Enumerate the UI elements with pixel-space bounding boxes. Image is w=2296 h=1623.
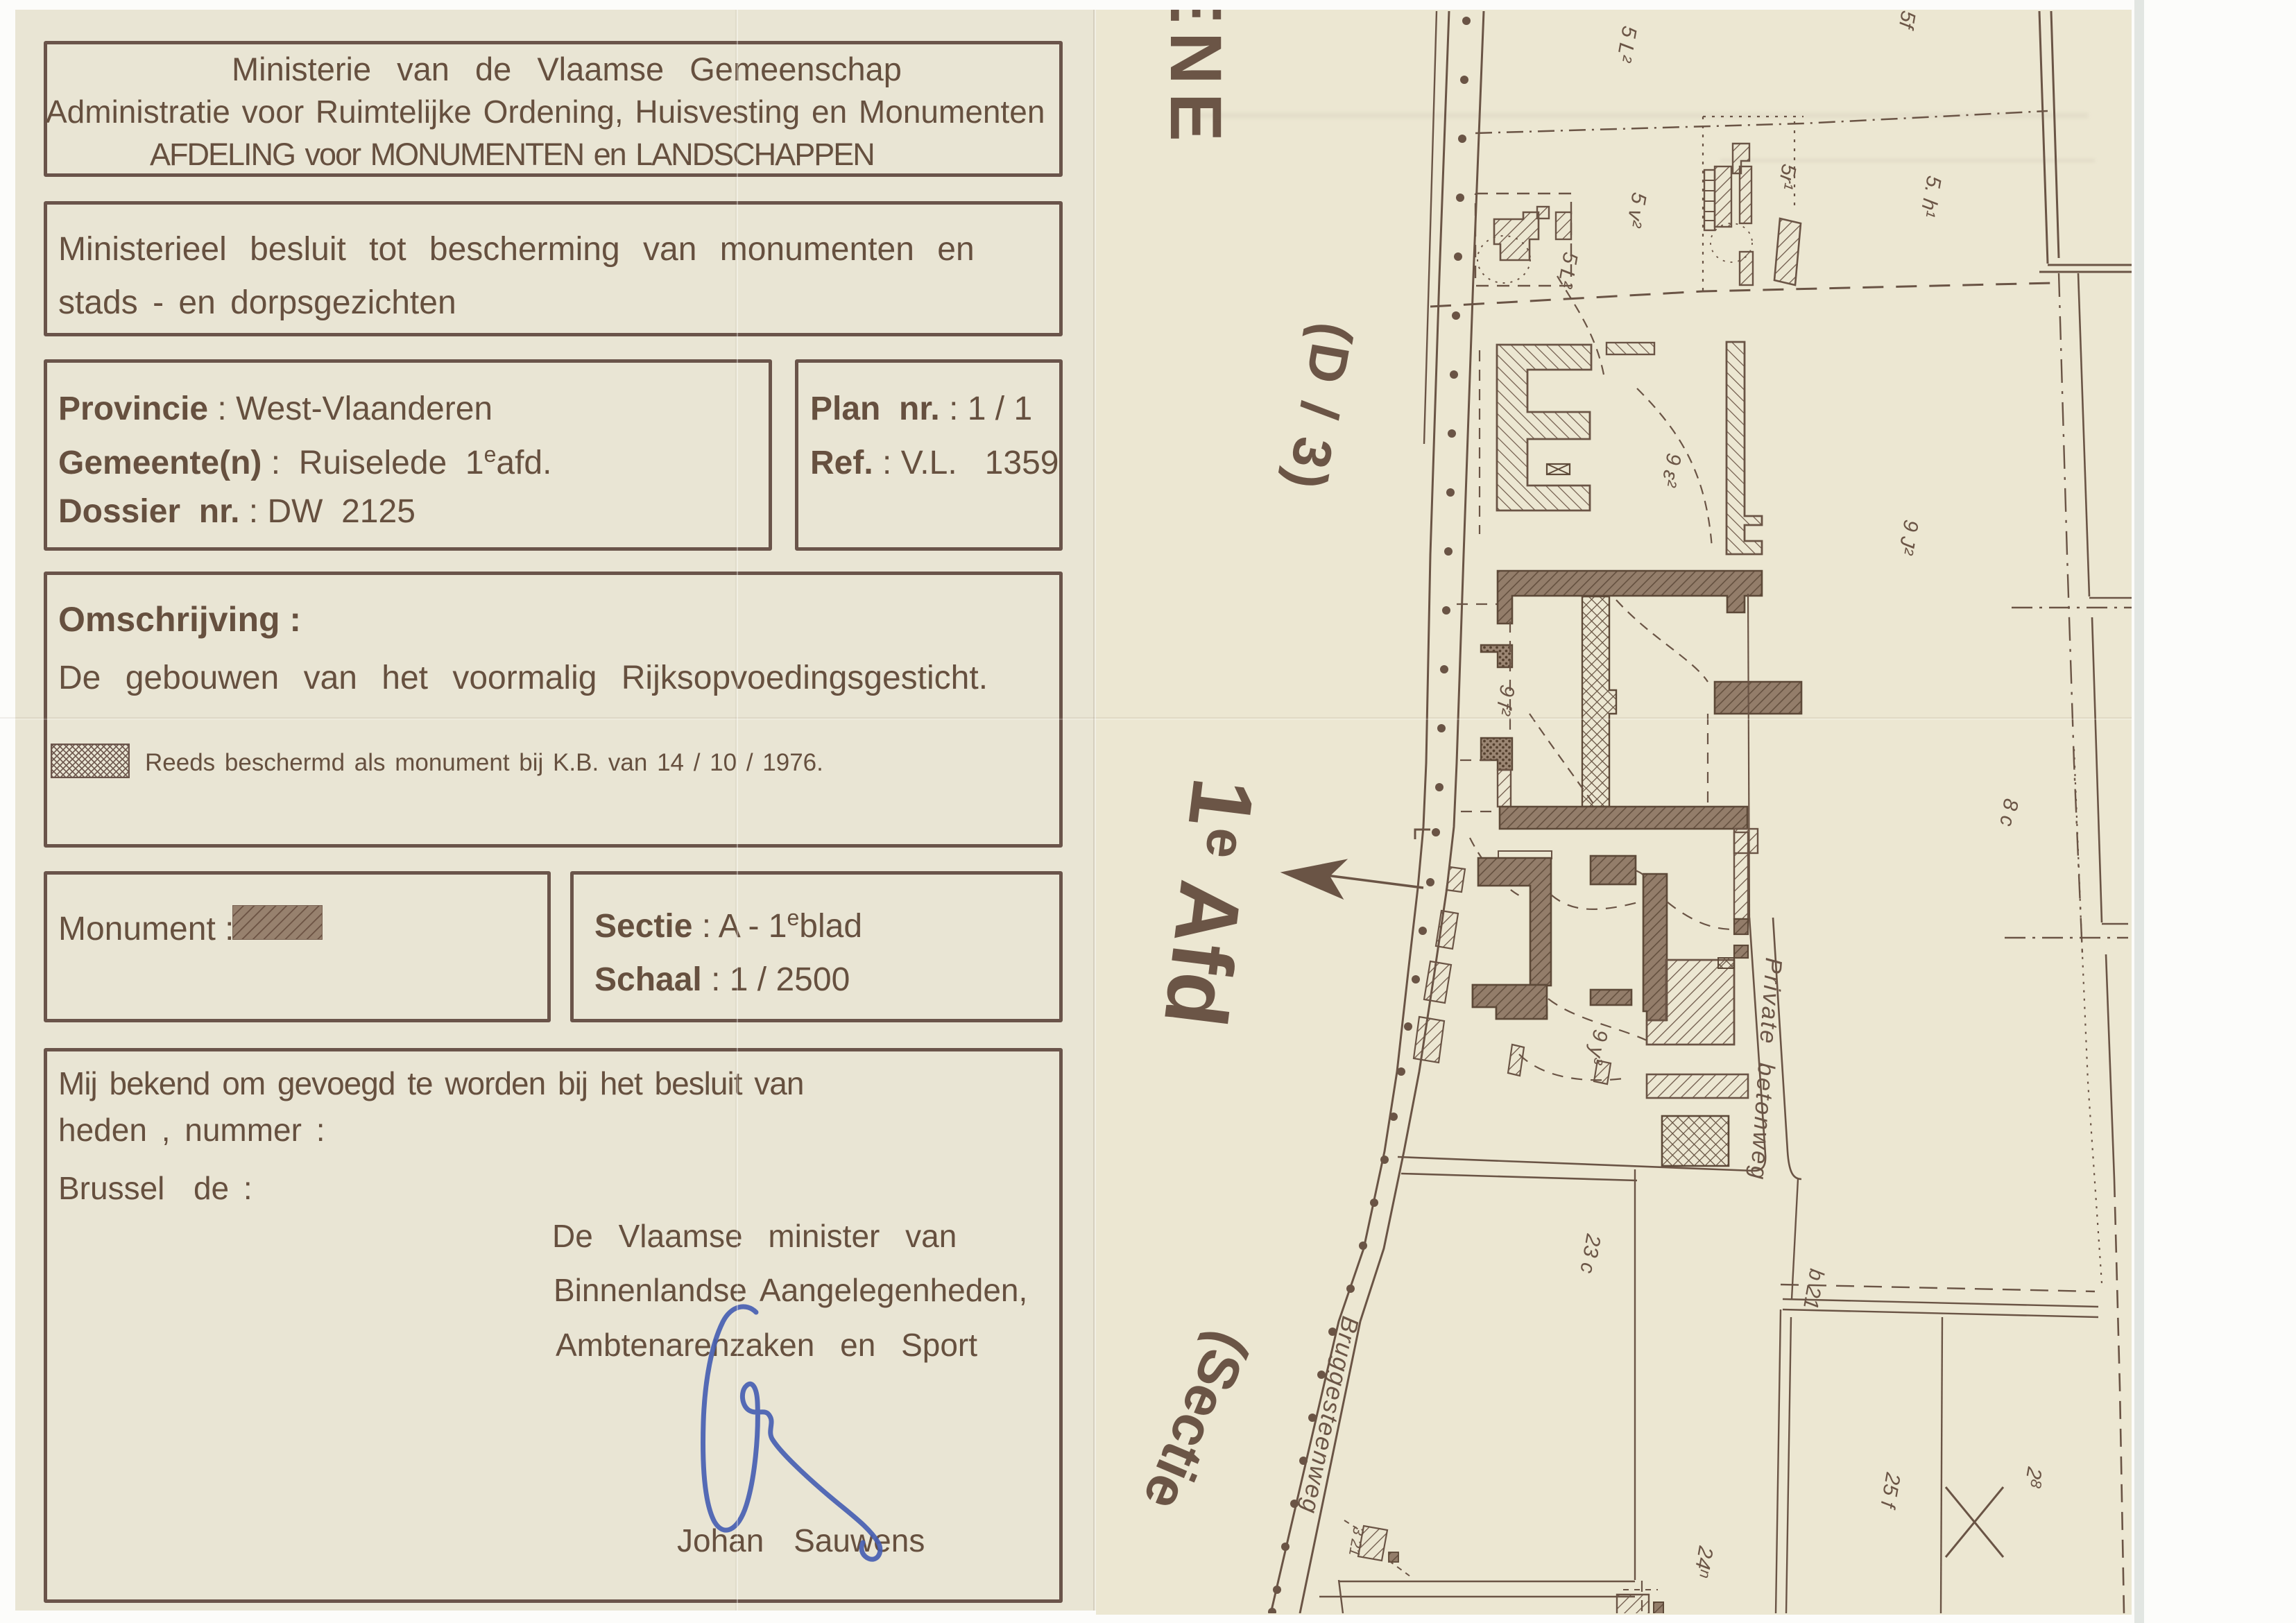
svg-text:Bruggesteenweg: Bruggesteenweg — [1296, 1314, 1364, 1516]
svg-text:5. h¹: 5. h¹ — [1916, 174, 1946, 219]
svg-text:ENE: ENE — [1155, 0, 1236, 150]
svg-text:9 y³: 9 y³ — [1583, 1028, 1611, 1067]
svg-text:1e Afd: 1e Afd — [1146, 773, 1274, 1032]
svg-text:5 v²: 5 v² — [1622, 191, 1650, 230]
svg-text:5f: 5f — [1894, 9, 1919, 32]
svg-text:8 c: 8 c — [1995, 797, 2022, 828]
svg-text:23 c: 23 c — [1575, 1232, 1605, 1276]
svg-text:9 f²: 9 f² — [1491, 683, 1518, 717]
svg-text:Private betonweg: Private betonweg — [1745, 956, 1786, 1182]
svg-text:5 L²: 5 L² — [1612, 24, 1641, 65]
svg-text:b 21: b 21 — [1799, 1267, 1828, 1311]
svg-text:(Sectie: (Sectie — [1131, 1323, 1262, 1519]
svg-text:5 L²: 5 L² — [1553, 250, 1582, 291]
svg-text:28: 28 — [2020, 1465, 2048, 1490]
svg-text:25 f: 25 f — [1876, 1470, 1905, 1511]
svg-text:9 J²: 9 J² — [1894, 518, 1922, 557]
svg-text:(D / 3): (D / 3) — [1276, 318, 1365, 496]
svg-text:24n: 24n — [1689, 1544, 1719, 1580]
svg-text:9 ε²: 9 ε² — [1657, 452, 1686, 489]
svg-text:5r¹: 5r¹ — [1774, 162, 1801, 191]
